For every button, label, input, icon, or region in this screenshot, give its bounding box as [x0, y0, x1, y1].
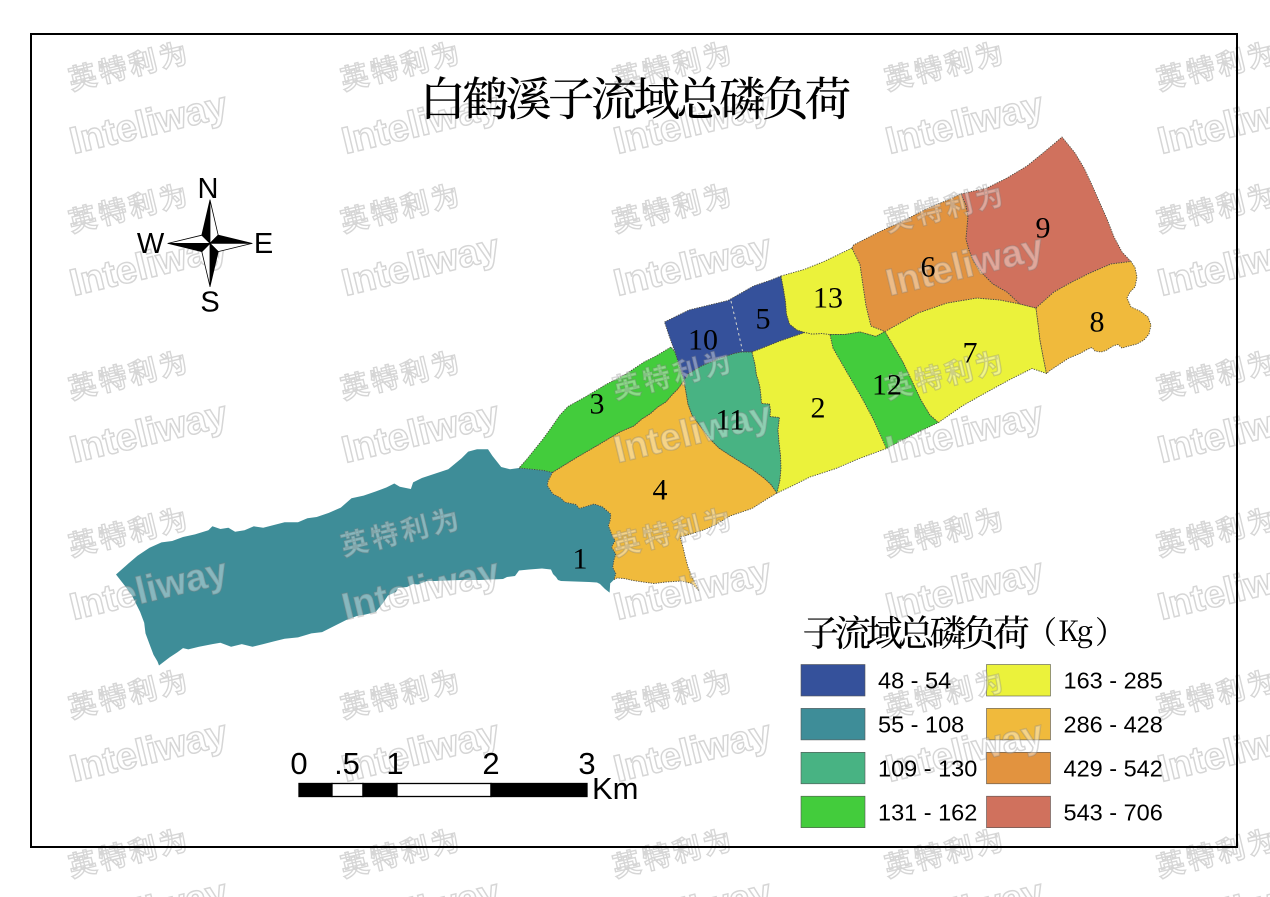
svg-text:1: 1	[386, 746, 403, 781]
svg-text:543 - 706: 543 - 706	[1064, 799, 1163, 825]
svg-text:8: 8	[1090, 306, 1105, 339]
svg-text:Km: Km	[592, 771, 639, 806]
svg-text:2: 2	[482, 746, 499, 781]
svg-text:48 - 54: 48 - 54	[878, 668, 951, 694]
svg-text:W: W	[137, 228, 165, 260]
svg-text:0: 0	[290, 746, 307, 781]
svg-text:.5: .5	[334, 746, 360, 781]
svg-text:1: 1	[573, 543, 588, 576]
svg-text:13: 13	[813, 282, 843, 315]
svg-text:286 - 428: 286 - 428	[1064, 712, 1163, 738]
svg-text:429 - 542: 429 - 542	[1064, 756, 1163, 782]
svg-text:12: 12	[872, 369, 902, 402]
svg-text:N: N	[198, 173, 219, 205]
svg-text:6: 6	[921, 251, 936, 284]
svg-text:S: S	[200, 287, 219, 319]
svg-text:109 - 130: 109 - 130	[878, 756, 977, 782]
svg-text:5: 5	[756, 303, 771, 336]
svg-text:3: 3	[590, 388, 605, 421]
svg-text:7: 7	[963, 337, 978, 370]
svg-text:163 - 285: 163 - 285	[1064, 668, 1163, 694]
svg-text:4: 4	[653, 474, 668, 507]
svg-text:55 - 108: 55 - 108	[878, 712, 964, 738]
svg-text:131 - 162: 131 - 162	[878, 799, 977, 825]
svg-text:11: 11	[716, 404, 745, 437]
svg-text:2: 2	[811, 392, 826, 425]
svg-text:E: E	[254, 228, 273, 260]
svg-text:9: 9	[1036, 212, 1051, 245]
svg-text:10: 10	[688, 324, 718, 357]
